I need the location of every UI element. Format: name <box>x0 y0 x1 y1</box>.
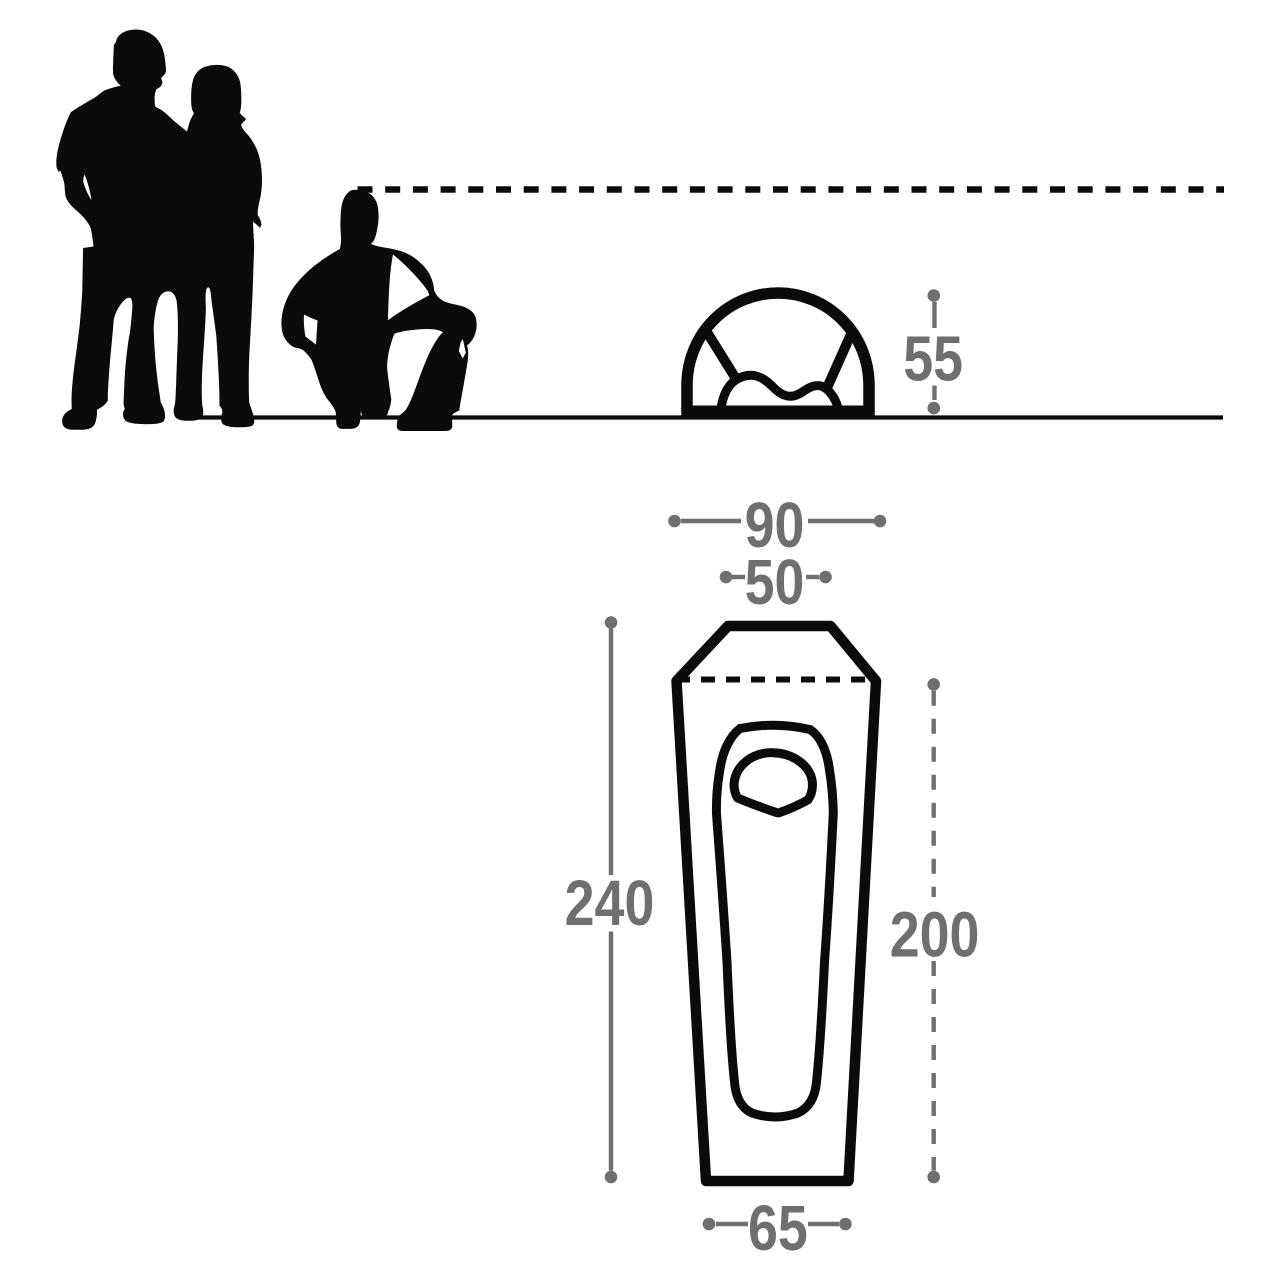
svg-text:200: 200 <box>890 898 980 971</box>
svg-text:240: 240 <box>565 867 655 940</box>
svg-text:65: 65 <box>748 1191 808 1264</box>
svg-text:50: 50 <box>745 546 805 619</box>
svg-text:55: 55 <box>903 322 963 395</box>
